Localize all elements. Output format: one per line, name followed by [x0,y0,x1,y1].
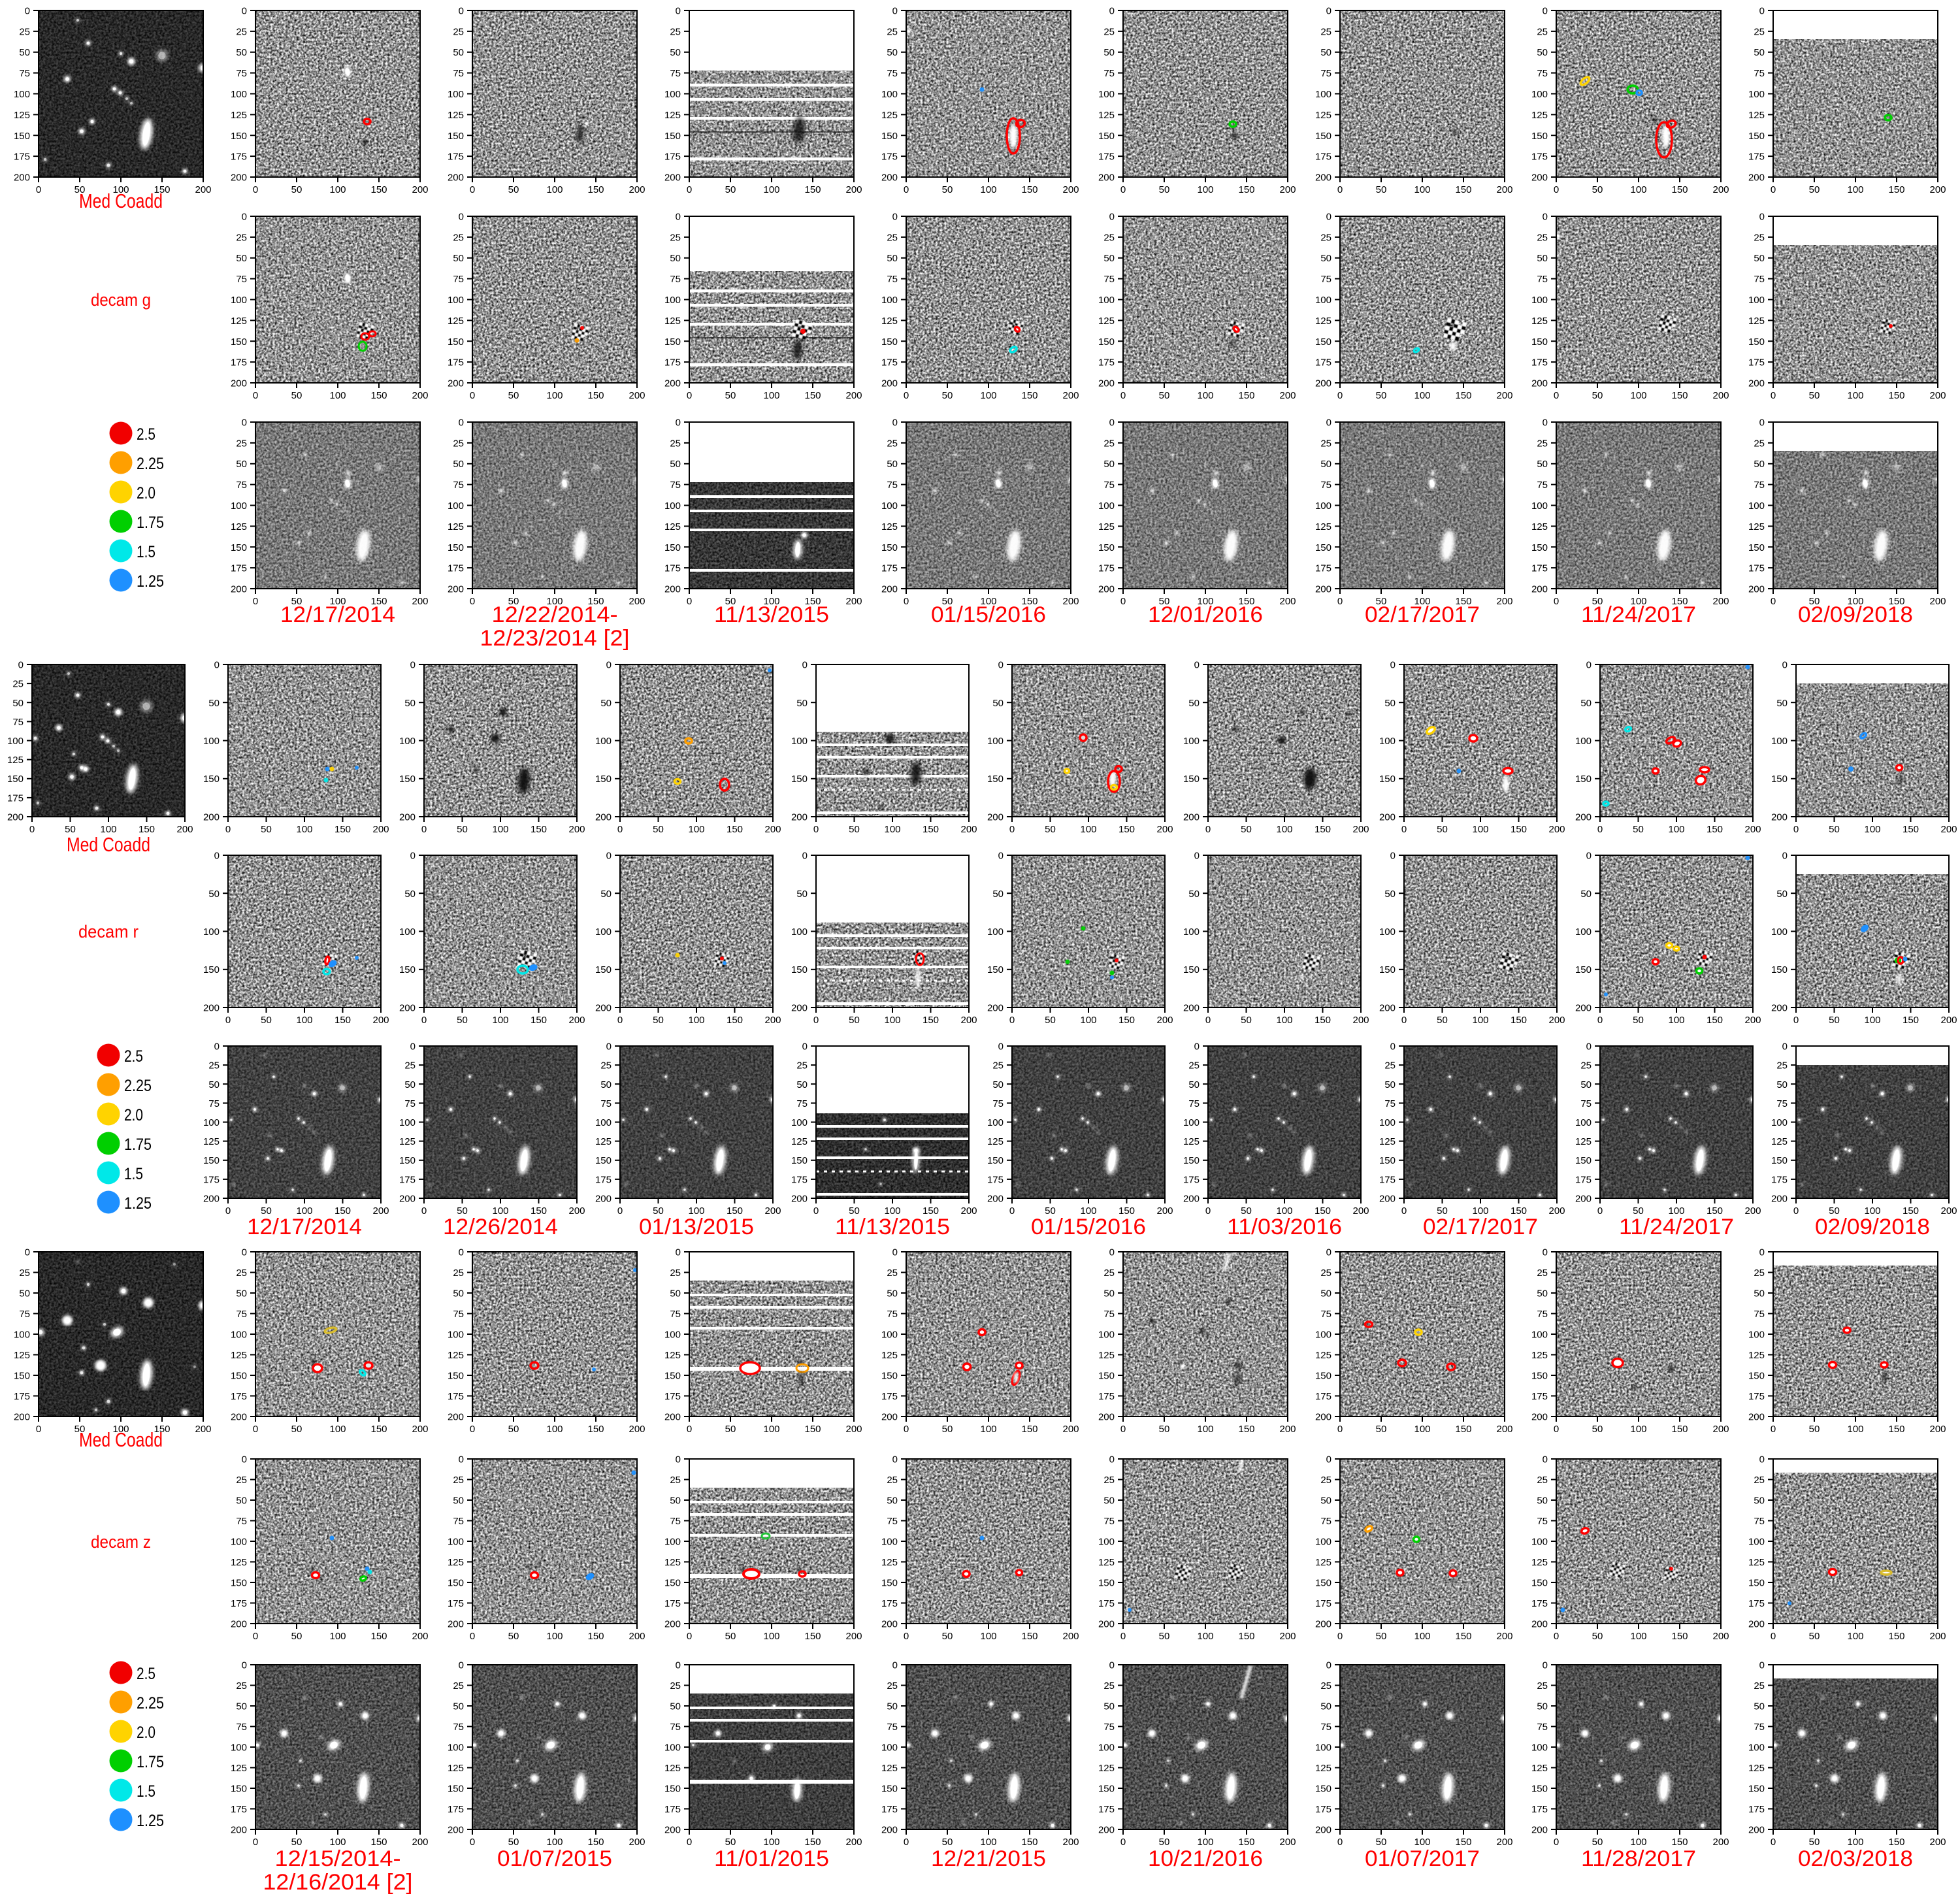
svg-text:150: 150 [1903,824,1919,835]
svg-text:100: 100 [1197,184,1213,195]
svg-text:100: 100 [399,1117,416,1128]
svg-text:200: 200 [629,1837,645,1848]
svg-text:200: 200 [845,1631,862,1642]
svg-text:200: 200 [1771,1194,1788,1205]
svg-text:decam g: decam g [91,290,151,310]
svg-text:100: 100 [1668,1015,1684,1026]
svg-text:175: 175 [1098,1804,1115,1815]
svg-text:150: 150 [881,1578,898,1589]
svg-text:150: 150 [1888,184,1904,195]
svg-text:150: 150 [203,774,220,785]
svg-text:200: 200 [1929,1837,1946,1848]
svg-text:100: 100 [7,736,24,747]
svg-text:150: 150 [1183,964,1200,975]
svg-text:0: 0 [1194,851,1200,862]
svg-text:200: 200 [1748,584,1765,595]
svg-text:0: 0 [1782,1041,1788,1053]
svg-text:50: 50 [1384,1079,1396,1090]
svg-text:25: 25 [453,1680,464,1692]
svg-text:100: 100 [1630,1424,1646,1435]
svg-text:50: 50 [208,698,220,709]
svg-text:100: 100 [763,390,779,401]
svg-text:125: 125 [1575,1136,1592,1147]
svg-text:150: 150 [727,1015,743,1026]
svg-text:50: 50 [1776,889,1788,900]
svg-text:200: 200 [1748,1412,1765,1423]
svg-text:2.25: 2.25 [137,455,164,473]
svg-text:150: 150 [595,1155,612,1166]
svg-text:200: 200 [764,1205,781,1217]
svg-text:12/17/2014: 12/17/2014 [280,602,395,627]
svg-text:100: 100 [1630,184,1646,195]
svg-text:175: 175 [1531,1391,1548,1402]
svg-text:100: 100 [231,500,247,512]
svg-text:75: 75 [1776,1098,1788,1109]
svg-text:50: 50 [1537,459,1548,470]
svg-text:150: 150 [1098,336,1115,348]
svg-text:0: 0 [1337,1837,1343,1848]
svg-text:0: 0 [1326,1660,1331,1671]
svg-text:75: 75 [1103,480,1115,491]
svg-text:100: 100 [664,89,681,100]
svg-text:50: 50 [725,390,736,401]
svg-text:200: 200 [1548,824,1565,835]
svg-text:0: 0 [225,824,231,835]
svg-text:200: 200 [1379,812,1396,823]
svg-text:1.75: 1.75 [124,1136,152,1154]
svg-text:0: 0 [1326,212,1331,223]
svg-text:0: 0 [1759,6,1765,17]
svg-text:125: 125 [448,1350,464,1361]
svg-text:0: 0 [1120,1631,1126,1642]
svg-text:200: 200 [1929,1424,1946,1435]
svg-text:200: 200 [203,1003,220,1014]
svg-text:25: 25 [670,232,681,243]
svg-text:200: 200 [764,1015,781,1026]
svg-text:150: 150 [595,964,612,975]
svg-text:200: 200 [203,1194,220,1205]
svg-text:200: 200 [1496,1424,1512,1435]
svg-text:100: 100 [1847,1424,1863,1435]
svg-text:150: 150 [231,1371,247,1382]
svg-text:150: 150 [1671,1424,1688,1435]
svg-text:2.5: 2.5 [137,1665,155,1683]
svg-text:200: 200 [845,390,862,401]
svg-text:0: 0 [617,1015,623,1026]
svg-text:75: 75 [1537,68,1548,79]
svg-text:0: 0 [242,6,247,17]
svg-text:100: 100 [448,1537,464,1548]
svg-text:125: 125 [231,521,247,532]
svg-text:125: 125 [231,1557,247,1568]
svg-text:200: 200 [231,172,247,184]
svg-text:200: 200 [1748,1619,1765,1630]
svg-text:100: 100 [203,926,220,938]
svg-text:0: 0 [253,390,258,401]
svg-text:01/07/2015: 01/07/2015 [497,1846,612,1871]
svg-text:200: 200 [1496,596,1512,607]
svg-text:100: 100 [1748,295,1765,306]
svg-text:0: 0 [1782,660,1788,671]
svg-text:200: 200 [881,172,898,184]
svg-text:50: 50 [942,184,953,195]
svg-text:125: 125 [664,521,681,532]
svg-text:50: 50 [670,1701,681,1712]
svg-text:50: 50 [1188,698,1200,709]
svg-text:100: 100 [1472,824,1488,835]
svg-text:0: 0 [1109,417,1115,429]
svg-text:0: 0 [617,1205,623,1217]
svg-text:100: 100 [1414,1424,1430,1435]
svg-text:75: 75 [670,1309,681,1320]
svg-text:25: 25 [670,1268,681,1279]
svg-text:50: 50 [261,824,272,835]
svg-text:25: 25 [796,1060,808,1072]
svg-text:0: 0 [1009,1015,1015,1026]
svg-text:0: 0 [904,390,909,401]
svg-text:200: 200 [595,812,612,823]
svg-text:0: 0 [242,1247,247,1258]
svg-text:200: 200 [448,1825,464,1836]
svg-text:200: 200 [1771,812,1788,823]
svg-text:0: 0 [617,824,623,835]
svg-text:175: 175 [448,563,464,574]
svg-text:0: 0 [687,1837,692,1848]
svg-text:0: 0 [1120,1424,1126,1435]
svg-text:50: 50 [1633,824,1644,835]
svg-text:0: 0 [687,390,692,401]
svg-text:25: 25 [453,1268,464,1279]
svg-text:11/01/2015: 11/01/2015 [714,1846,829,1871]
svg-text:0: 0 [242,1660,247,1671]
svg-text:50: 50 [508,390,519,401]
svg-text:75: 75 [887,68,898,79]
svg-text:75: 75 [453,1309,464,1320]
svg-text:200: 200 [845,184,862,195]
svg-text:2.0: 2.0 [137,484,155,502]
svg-text:100: 100 [231,295,247,306]
svg-text:100: 100 [1847,184,1863,195]
svg-text:2.25: 2.25 [124,1077,152,1095]
svg-text:75: 75 [1103,1516,1115,1527]
svg-text:75: 75 [1103,274,1115,285]
svg-text:100: 100 [448,1743,464,1754]
svg-text:0: 0 [1586,1041,1592,1053]
svg-text:0: 0 [1554,596,1559,607]
svg-text:150: 150 [1315,1015,1331,1026]
svg-text:100: 100 [881,500,898,512]
svg-text:50: 50 [1159,1631,1170,1642]
svg-text:200: 200 [1098,172,1115,184]
svg-text:200: 200 [1929,596,1946,607]
svg-text:150: 150 [14,131,30,142]
svg-text:150: 150 [1098,1371,1115,1382]
svg-text:150: 150 [1707,1015,1723,1026]
svg-text:0: 0 [892,212,898,223]
svg-text:50: 50 [992,698,1004,709]
svg-text:0: 0 [904,1631,909,1642]
svg-text:75: 75 [236,1722,247,1733]
svg-text:50: 50 [453,47,464,58]
svg-text:0: 0 [998,851,1004,862]
svg-text:0: 0 [1771,1631,1776,1642]
svg-text:50: 50 [236,1288,247,1300]
svg-text:11/13/2015: 11/13/2015 [714,602,829,627]
svg-text:200: 200 [664,1619,681,1630]
svg-text:0: 0 [1759,1660,1765,1671]
svg-text:50: 50 [600,698,612,709]
svg-text:75: 75 [453,68,464,79]
svg-text:25: 25 [1103,438,1115,449]
svg-text:75: 75 [1754,274,1765,285]
svg-text:150: 150 [664,1371,681,1382]
svg-text:50: 50 [1159,1424,1170,1435]
svg-text:150: 150 [1531,1784,1548,1795]
svg-text:200: 200 [629,596,645,607]
svg-text:150: 150 [448,1371,464,1382]
svg-text:50: 50 [887,1701,898,1712]
svg-text:0: 0 [1759,1247,1765,1258]
svg-text:150: 150 [881,1371,898,1382]
svg-text:100: 100 [1531,1743,1548,1754]
svg-text:150: 150 [1098,542,1115,553]
svg-text:175: 175 [1531,152,1548,163]
svg-text:75: 75 [236,480,247,491]
svg-text:125: 125 [203,1136,220,1147]
svg-text:175: 175 [203,1174,220,1185]
svg-text:150: 150 [664,542,681,553]
svg-text:100: 100 [1771,736,1788,747]
svg-text:50: 50 [453,459,464,470]
svg-text:0: 0 [214,660,220,671]
svg-text:100: 100 [399,926,416,938]
svg-text:50: 50 [19,1288,30,1300]
svg-text:200: 200 [629,184,645,195]
svg-text:200: 200 [629,1424,645,1435]
svg-text:150: 150 [1748,542,1765,553]
svg-text:125: 125 [14,1350,30,1361]
svg-text:0: 0 [1009,1205,1015,1217]
svg-text:100: 100 [231,1330,247,1341]
svg-text:100: 100 [1864,824,1880,835]
svg-text:100: 100 [1183,1117,1200,1128]
svg-text:200: 200 [448,172,464,184]
svg-text:75: 75 [670,68,681,79]
svg-text:50: 50 [600,889,612,900]
svg-text:0: 0 [1390,1041,1396,1053]
svg-text:25: 25 [453,26,464,37]
svg-text:150: 150 [881,131,898,142]
svg-text:0: 0 [1390,660,1396,671]
svg-text:200: 200 [1352,824,1369,835]
svg-text:175: 175 [664,1391,681,1402]
svg-text:200: 200 [664,1825,681,1836]
svg-text:175: 175 [1379,1174,1396,1185]
svg-text:100: 100 [1630,1631,1646,1642]
svg-text:100: 100 [881,89,898,100]
svg-text:200: 200 [987,1003,1004,1014]
svg-text:0: 0 [1771,1424,1776,1435]
svg-text:0: 0 [1554,1631,1559,1642]
svg-text:200: 200 [231,584,247,595]
svg-text:50: 50 [1376,1631,1387,1642]
svg-text:100: 100 [546,1424,563,1435]
svg-text:0: 0 [470,390,475,401]
svg-text:100: 100 [1315,500,1331,512]
svg-text:200: 200 [1279,390,1296,401]
svg-text:25: 25 [404,1060,416,1072]
svg-text:0: 0 [1194,660,1200,671]
svg-text:150: 150 [1888,1631,1904,1642]
svg-text:125: 125 [1098,1763,1115,1774]
svg-text:150: 150 [595,774,612,785]
svg-text:150: 150 [448,1784,464,1795]
svg-text:50: 50 [291,1631,302,1642]
svg-text:0: 0 [459,212,464,223]
svg-text:175: 175 [664,1598,681,1609]
svg-text:0: 0 [1597,1205,1603,1217]
svg-text:150: 150 [791,964,808,975]
svg-text:150: 150 [804,1424,821,1435]
svg-text:100: 100 [231,1537,247,1548]
svg-text:50: 50 [1592,1424,1603,1435]
svg-text:200: 200 [1352,1205,1369,1217]
svg-text:75: 75 [1103,1722,1115,1733]
svg-text:150: 150 [987,964,1004,975]
svg-text:75: 75 [887,1516,898,1527]
svg-text:0: 0 [214,1041,220,1053]
svg-text:150: 150 [1098,1784,1115,1795]
svg-text:0: 0 [242,417,247,429]
svg-text:50: 50 [887,1288,898,1300]
svg-text:75: 75 [208,1098,220,1109]
svg-text:200: 200 [203,812,220,823]
svg-text:200: 200 [1712,184,1729,195]
svg-text:50: 50 [1754,1288,1765,1300]
svg-text:175: 175 [14,1391,30,1402]
svg-text:200: 200 [1062,390,1079,401]
svg-text:75: 75 [1103,68,1115,79]
svg-text:75: 75 [1103,1309,1115,1320]
svg-text:50: 50 [1320,1701,1331,1712]
svg-text:50: 50 [1045,1015,1056,1026]
svg-text:200: 200 [881,1412,898,1423]
svg-text:175: 175 [1098,357,1115,368]
svg-text:100: 100 [688,1015,704,1026]
svg-text:200: 200 [1712,1424,1729,1435]
svg-text:100: 100 [1531,1330,1548,1341]
svg-text:75: 75 [1320,1516,1331,1527]
svg-text:10/21/2016: 10/21/2016 [1148,1846,1263,1871]
svg-text:125: 125 [1748,1763,1765,1774]
svg-text:125: 125 [399,1136,416,1147]
svg-text:200: 200 [845,596,862,607]
svg-text:150: 150 [1238,184,1254,195]
svg-text:75: 75 [453,274,464,285]
svg-text:150: 150 [587,184,604,195]
svg-text:150: 150 [1531,1371,1548,1382]
svg-text:50: 50 [1384,698,1396,709]
svg-text:50: 50 [992,889,1004,900]
svg-text:150: 150 [791,1155,808,1166]
svg-text:50: 50 [453,1701,464,1712]
svg-text:200: 200 [664,378,681,389]
svg-text:175: 175 [1183,1174,1200,1185]
svg-text:50: 50 [1103,47,1115,58]
svg-text:125: 125 [881,110,898,121]
svg-text:0: 0 [687,1631,692,1642]
svg-text:25: 25 [1537,232,1548,243]
svg-text:125: 125 [664,110,681,121]
svg-text:125: 125 [881,1557,898,1568]
svg-text:50: 50 [796,889,808,900]
svg-text:50: 50 [1754,253,1765,264]
svg-text:150: 150 [448,1578,464,1589]
svg-text:200: 200 [231,1825,247,1836]
svg-text:50: 50 [1437,824,1448,835]
svg-text:0: 0 [1586,660,1592,671]
svg-text:50: 50 [849,1015,860,1026]
svg-text:100: 100 [1847,390,1863,401]
svg-text:0: 0 [687,184,692,195]
svg-text:50: 50 [208,1079,220,1090]
svg-text:0: 0 [904,596,909,607]
svg-text:50: 50 [1809,1631,1820,1642]
svg-text:50: 50 [942,1631,953,1642]
svg-text:150: 150 [1315,131,1331,142]
svg-text:150: 150 [1021,390,1037,401]
svg-text:50: 50 [796,1079,808,1090]
svg-text:125: 125 [1315,1763,1331,1774]
svg-text:100: 100 [881,1330,898,1341]
svg-text:150: 150 [531,1015,547,1026]
svg-text:0: 0 [1109,6,1115,17]
svg-text:200: 200 [1379,1194,1396,1205]
svg-text:50: 50 [849,824,860,835]
svg-text:0: 0 [410,660,416,671]
svg-text:100: 100 [231,89,247,100]
svg-text:150: 150 [1379,1155,1396,1166]
svg-text:0: 0 [1194,1041,1200,1053]
svg-text:150: 150 [1021,1631,1037,1642]
svg-text:100: 100 [492,1015,508,1026]
svg-text:100: 100 [763,184,779,195]
svg-text:50: 50 [19,47,30,58]
svg-text:100: 100 [546,1631,563,1642]
svg-text:175: 175 [881,1598,898,1609]
svg-text:50: 50 [1159,390,1170,401]
svg-text:150: 150 [1455,184,1471,195]
svg-text:200: 200 [176,824,193,835]
svg-text:125: 125 [1098,316,1115,327]
svg-text:175: 175 [881,152,898,163]
svg-text:25: 25 [1320,1475,1331,1486]
svg-text:11/28/2017: 11/28/2017 [1581,1846,1696,1871]
svg-text:200: 200 [412,1424,428,1435]
svg-text:2.5: 2.5 [124,1047,143,1066]
svg-text:100: 100 [231,1743,247,1754]
svg-text:50: 50 [653,1015,664,1026]
svg-text:0: 0 [1586,851,1592,862]
svg-text:200: 200 [595,1194,612,1205]
svg-text:50: 50 [236,1701,247,1712]
svg-text:0: 0 [892,417,898,429]
svg-text:75: 75 [1537,480,1548,491]
svg-text:150: 150 [1315,1578,1331,1589]
svg-text:175: 175 [231,152,247,163]
svg-text:150: 150 [1238,1424,1254,1435]
svg-text:50: 50 [291,390,302,401]
